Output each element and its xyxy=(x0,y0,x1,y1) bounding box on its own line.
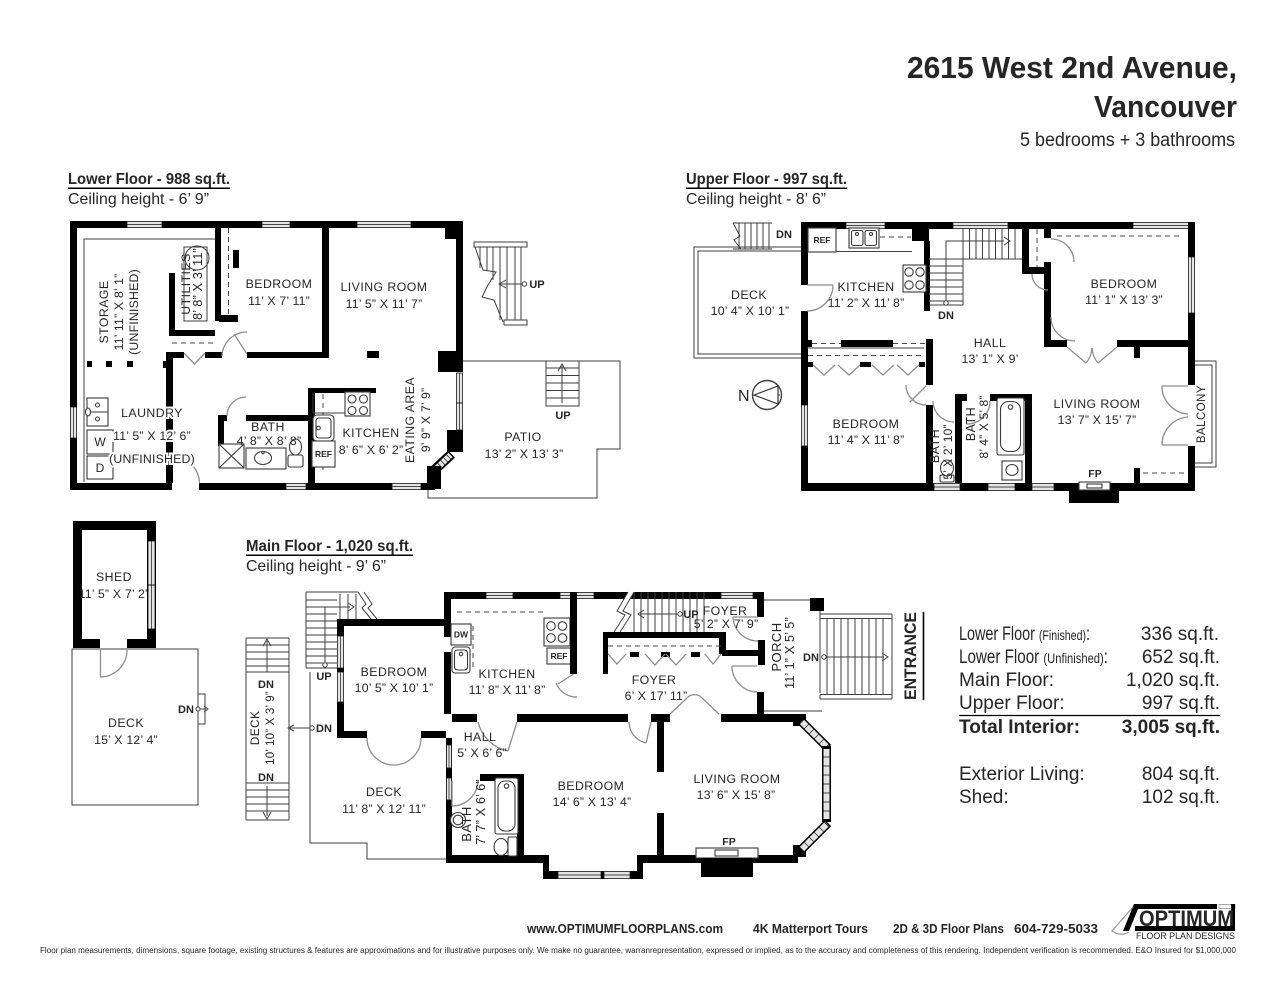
svg-text:UP: UP xyxy=(529,279,544,291)
svg-text:BATH: BATH xyxy=(928,429,942,463)
svg-text:HALL: HALL xyxy=(464,730,497,744)
svg-text:DECK: DECK xyxy=(366,785,402,799)
svg-text:Lower Floor (Finished):: Lower Floor (Finished): xyxy=(959,624,1090,645)
svg-text:4’ 8” X 8’ 8”: 4’ 8” X 8’ 8” xyxy=(237,434,302,448)
svg-text:DN: DN xyxy=(258,679,274,691)
svg-text:11’ 1” X 5’ 5”: 11’ 1” X 5’ 5” xyxy=(783,617,797,689)
svg-text:2615 West 2nd Avenue,: 2615 West 2nd Avenue, xyxy=(907,50,1237,85)
svg-text:11’ X 7’ 11”: 11’ X 7’ 11” xyxy=(248,294,310,308)
svg-text:LAUNDRY: LAUNDRY xyxy=(121,406,183,420)
svg-text:Ceiling height - 8’ 6”: Ceiling height - 8’ 6” xyxy=(686,191,826,208)
svg-text:3,005 sq.ft.: 3,005 sq.ft. xyxy=(1122,717,1220,738)
svg-text:www.OPTIMUMFLOORPLANS.com: www.OPTIMUMFLOORPLANS.com xyxy=(526,922,723,936)
svg-text:5’ X 2’ 10”: 5’ X 2’ 10” xyxy=(941,424,955,479)
svg-text:REF: REF xyxy=(814,235,831,245)
svg-text:BEDROOM: BEDROOM xyxy=(361,665,428,679)
svg-text:1,020 sq.ft.: 1,020 sq.ft. xyxy=(1126,670,1220,691)
svg-text:10’ 10” X 3’ 9”: 10’ 10” X 3’ 9” xyxy=(265,691,277,765)
svg-text:DN: DN xyxy=(803,652,819,664)
svg-text:KITCHEN: KITCHEN xyxy=(478,667,535,681)
svg-text:5 bedrooms + 3 bathrooms: 5 bedrooms + 3 bathrooms xyxy=(1020,130,1235,151)
svg-text:Total Interior:: Total Interior: xyxy=(959,717,1080,738)
svg-text:11’ 5” X 11’ 7”: 11’ 5” X 11’ 7” xyxy=(346,297,423,311)
svg-text:STORAGE: STORAGE xyxy=(97,280,111,343)
svg-text:7’ 7” X 6’ 6”: 7’ 7” X 6’ 6” xyxy=(474,779,488,845)
svg-text:11’ 1” X 13’ 3”: 11’ 1” X 13’ 3” xyxy=(1085,293,1163,307)
svg-text:LIVING ROOM: LIVING ROOM xyxy=(694,772,781,786)
svg-text:4K Matterport Tours: 4K Matterport Tours xyxy=(753,922,868,936)
svg-text:N: N xyxy=(738,388,750,405)
svg-text:BEDROOM: BEDROOM xyxy=(246,277,313,291)
svg-text:Upper Floor:: Upper Floor: xyxy=(959,693,1065,714)
svg-text:13’ 2” X 13’ 3”: 13’ 2” X 13’ 3” xyxy=(485,447,564,461)
svg-text:W: W xyxy=(94,435,106,449)
svg-text:Main Floor:: Main Floor: xyxy=(959,670,1054,691)
svg-text:DECK: DECK xyxy=(731,288,767,302)
svg-text:11’ 8” X 12’ 11”: 11’ 8” X 12’ 11” xyxy=(342,802,426,816)
svg-text:DN: DN xyxy=(258,772,274,784)
svg-text:(UNFINISHED): (UNFINISHED) xyxy=(127,269,141,355)
svg-text:FOYER: FOYER xyxy=(703,604,748,618)
svg-text:(UNFINISHED): (UNFINISHED) xyxy=(109,452,195,466)
svg-text:BALCONY: BALCONY xyxy=(1196,385,1208,443)
svg-text:DN: DN xyxy=(178,704,194,716)
svg-text:KITCHEN: KITCHEN xyxy=(837,280,894,294)
svg-text:2D & 3D Floor Plans: 2D & 3D Floor Plans xyxy=(893,922,1004,936)
svg-text:6’ X 17’ 11”: 6’ X 17’ 11” xyxy=(625,689,688,703)
svg-text:11’ 2” X 11’ 8”: 11’ 2” X 11’ 8” xyxy=(828,296,905,310)
svg-text:REF: REF xyxy=(315,449,332,459)
svg-text:ENTRANCE: ENTRANCE xyxy=(901,612,920,700)
svg-text:Exterior Living:: Exterior Living: xyxy=(959,764,1085,785)
svg-text:FLOOR PLAN DESIGNS: FLOOR PLAN DESIGNS xyxy=(1136,931,1235,942)
svg-text:Ceiling height - 6’ 9”: Ceiling height - 6’ 9” xyxy=(68,191,209,208)
svg-text:BEDROOM: BEDROOM xyxy=(1091,277,1158,291)
svg-text:5’ X 6’ 6”: 5’ X 6’ 6” xyxy=(457,746,507,760)
svg-text:LIVING ROOM: LIVING ROOM xyxy=(341,280,428,294)
svg-text:13’ 6” X 15’ 8”: 13’ 6” X 15’ 8” xyxy=(697,788,776,802)
svg-text:8’ 8” X 3’ 11”: 8’ 8” X 3’ 11” xyxy=(191,248,205,320)
svg-text:11’ 11” X 8’ 1”: 11’ 11” X 8’ 1” xyxy=(112,274,126,351)
svg-text:604-729-5033: 604-729-5033 xyxy=(1014,922,1098,936)
svg-text:Lower Floor (Unfinished):: Lower Floor (Unfinished): xyxy=(959,647,1108,668)
svg-text:9’ 9” X 7’ 9”: 9’ 9” X 7’ 9” xyxy=(419,388,433,453)
svg-text:OPTIMUM: OPTIMUM xyxy=(1139,906,1234,931)
svg-text:10’ 5” X 10’ 1”: 10’ 5” X 10’ 1” xyxy=(355,681,434,695)
svg-text:15’ X 12’ 4”: 15’ X 12’ 4” xyxy=(94,733,158,747)
svg-text:BATH: BATH xyxy=(251,420,285,434)
svg-text:Vancouver: Vancouver xyxy=(1094,89,1237,124)
svg-text:11’ 5” X 12’ 6”: 11’ 5” X 12’ 6” xyxy=(113,429,191,443)
svg-text:HALL: HALL xyxy=(974,336,1007,350)
svg-text:UP: UP xyxy=(316,671,331,683)
svg-text:11’ 8” X 11’ 8”: 11’ 8” X 11’ 8” xyxy=(469,683,546,697)
svg-text:Lower Floor - 988 sq.ft.: Lower Floor - 988 sq.ft. xyxy=(68,171,230,188)
svg-text:Main Floor - 1,020 sq.ft.: Main Floor - 1,020 sq.ft. xyxy=(246,538,413,555)
svg-text:102 sq.ft.: 102 sq.ft. xyxy=(1142,787,1220,808)
svg-text:DECK: DECK xyxy=(248,711,262,746)
svg-text:EATING AREA: EATING AREA xyxy=(403,377,417,463)
svg-text:652 sq.ft.: 652 sq.ft. xyxy=(1142,647,1220,668)
svg-text:LIVING ROOM: LIVING ROOM xyxy=(1054,397,1141,411)
svg-text:13’ 1” X 9’: 13’ 1” X 9’ xyxy=(961,352,1018,366)
svg-text:FOYER: FOYER xyxy=(632,673,677,687)
svg-text:REF: REF xyxy=(551,651,568,661)
svg-text:11’ 4” X 11’ 8”: 11’ 4” X 11’ 8” xyxy=(828,433,905,447)
svg-text:UP: UP xyxy=(555,410,570,422)
svg-text:BEDROOM: BEDROOM xyxy=(558,779,625,793)
svg-text:11’ 5” X 7’ 2”: 11’ 5” X 7’ 2” xyxy=(79,587,150,601)
svg-text:Shed:: Shed: xyxy=(959,787,1009,808)
svg-text:DN: DN xyxy=(776,229,792,241)
svg-text:10’ 4” X 10’ 1”: 10’ 4” X 10’ 1” xyxy=(711,304,790,318)
svg-text:BATH: BATH xyxy=(459,806,474,842)
svg-text:997 sq.ft.: 997 sq.ft. xyxy=(1142,693,1220,714)
svg-text:Floor plan measurements, dimen: Floor plan measurements, dimensions, squ… xyxy=(40,946,1237,955)
svg-text:BATH: BATH xyxy=(964,407,978,441)
svg-text:5’ 2” X 7’ 9”: 5’ 2” X 7’ 9” xyxy=(694,617,759,631)
svg-text:FP: FP xyxy=(1088,468,1101,480)
svg-text:13’ 7” X 15’ 7”: 13’ 7” X 15’ 7” xyxy=(1058,413,1137,427)
svg-text:DN: DN xyxy=(316,723,332,735)
svg-text:PORCH: PORCH xyxy=(769,622,784,671)
svg-text:SHED: SHED xyxy=(96,570,132,584)
svg-text:PATIO: PATIO xyxy=(504,430,541,444)
svg-text:FP: FP xyxy=(722,836,735,848)
svg-text:8’ 6” X 6’ 2”: 8’ 6” X 6’ 2” xyxy=(339,443,404,457)
svg-text:14’ 6” X 13’ 4”: 14’ 6” X 13’ 4” xyxy=(553,795,632,809)
svg-text:D: D xyxy=(96,461,105,475)
svg-text:BEDROOM: BEDROOM xyxy=(833,417,900,431)
svg-text:336 sq.ft.: 336 sq.ft. xyxy=(1141,624,1219,645)
svg-text:804 sq.ft.: 804 sq.ft. xyxy=(1142,764,1220,785)
svg-text:8’ 4” X 5’ 8”: 8’ 4” X 5’ 8” xyxy=(977,395,991,458)
svg-text:DECK: DECK xyxy=(108,716,144,730)
svg-text:KITCHEN: KITCHEN xyxy=(342,426,399,440)
svg-text:Ceiling height - 9’ 6”: Ceiling height - 9’ 6” xyxy=(246,558,386,575)
svg-text:Upper Floor - 997 sq.ft.: Upper Floor - 997 sq.ft. xyxy=(686,171,847,188)
svg-text:DN: DN xyxy=(938,310,954,322)
svg-text:DW: DW xyxy=(454,630,469,640)
